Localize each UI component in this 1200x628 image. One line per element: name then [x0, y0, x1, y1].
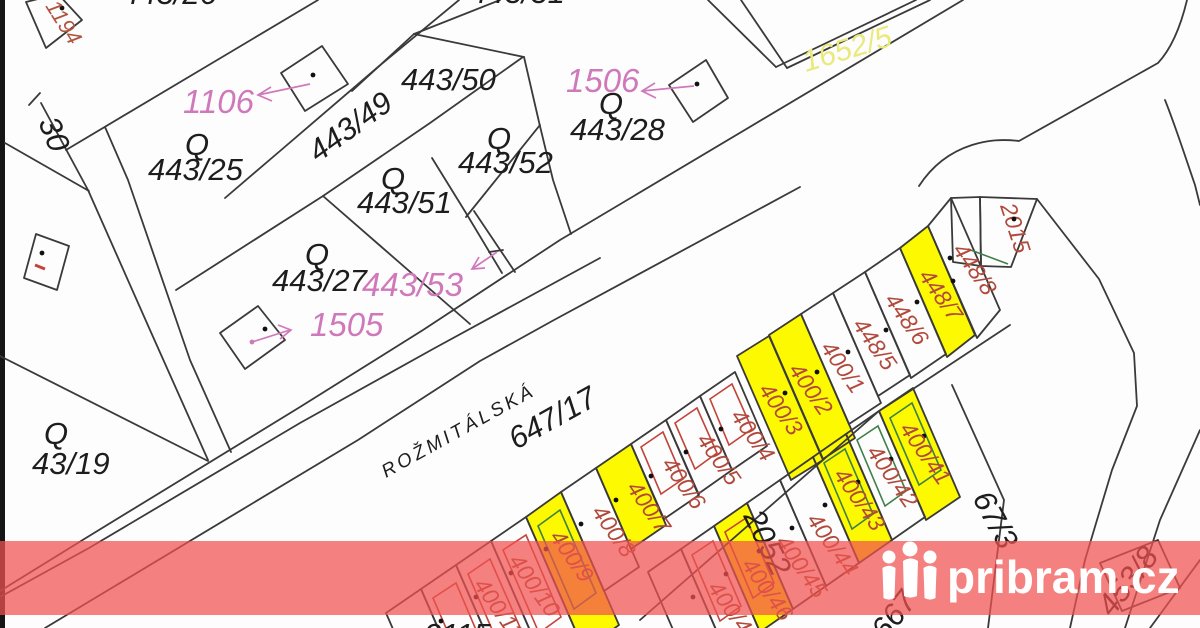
svg-text:1505: 1505	[310, 306, 384, 343]
svg-text:43/19: 43/19	[32, 446, 110, 481]
svg-text:1106: 1106	[183, 83, 255, 120]
svg-text:1506: 1506	[566, 62, 640, 99]
svg-text:pribram.cz: pribram.cz	[947, 551, 1180, 603]
svg-text:443/52: 443/52	[458, 145, 553, 180]
svg-text:443/31: 443/31	[470, 0, 565, 10]
svg-text:443/26: 443/26	[122, 0, 218, 11]
svg-text:443/51: 443/51	[357, 185, 452, 220]
svg-text:443/25: 443/25	[148, 152, 244, 187]
svg-text:443/53: 443/53	[362, 266, 464, 303]
svg-text:443/28: 443/28	[570, 112, 666, 147]
svg-text:2115: 2115	[423, 617, 491, 628]
svg-text:443/27: 443/27	[272, 263, 369, 298]
svg-text:443/50: 443/50	[401, 62, 496, 97]
